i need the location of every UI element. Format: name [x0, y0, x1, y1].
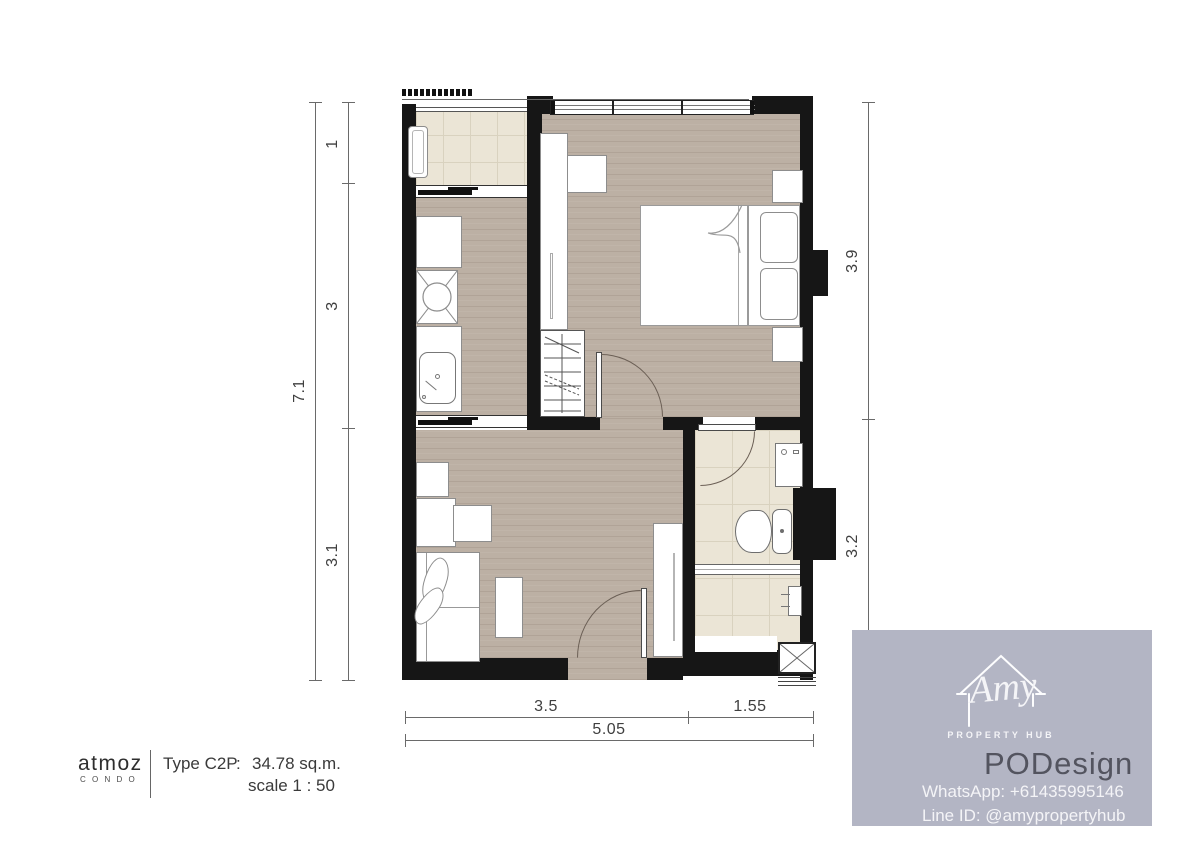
unit-type-label: Type C2P: [163, 754, 238, 774]
wardrobe-tall: [540, 133, 568, 330]
bathroom-vanity: [775, 443, 803, 487]
shelf-unit-hatched: [540, 330, 585, 417]
shower-mixer: [788, 586, 802, 616]
dining-seat-small: [416, 462, 449, 497]
entrance-threshold: [568, 656, 647, 680]
brand-logo: atmoz: [78, 752, 143, 776]
brand-sub: C O N D O: [80, 775, 137, 784]
nightstand-bottom: [772, 327, 803, 362]
toilet-tank: [772, 509, 792, 554]
wall-bottom-mid: [647, 658, 683, 680]
dim-line-left-outer: [315, 102, 316, 680]
dim-line-bottom-2: [405, 740, 814, 741]
bedroom-cabinet: [567, 155, 607, 193]
dim-label-right-seg1: 3.9: [844, 239, 862, 283]
nightstand-top: [772, 170, 803, 203]
watermark-whatsapp: WhatsApp: +61435995146: [922, 782, 1124, 802]
shaft-grille: [778, 676, 816, 686]
shower-screen: [695, 564, 800, 575]
dim-label-bottom-total: 5.05: [579, 721, 639, 739]
title-block: atmoz C O N D O Type C2P : 34.78 sq.m. s…: [70, 748, 350, 800]
bed-pillow-top: [760, 212, 798, 263]
dining-table: [416, 498, 456, 547]
wall-left: [402, 104, 416, 680]
title-divider: [150, 750, 151, 798]
balcony-floor: [416, 108, 527, 190]
dim-label-bottom-seg1: 3.5: [516, 698, 576, 716]
watermark-line-id: Line ID: @amypropertyhub: [922, 806, 1125, 826]
kitchen-sink: [419, 352, 456, 404]
entrance-door-leaf: [641, 588, 647, 658]
window-divider: [612, 101, 614, 114]
dim-label-left-seg1: 1: [324, 122, 342, 166]
dim-label-right-seg2: 3.2: [844, 524, 862, 568]
wall-bathroom-left: [683, 425, 695, 662]
dim-label-left-total: 7.1: [291, 369, 309, 413]
wall-divider-c: [755, 417, 800, 430]
watermark-subtitle: PROPERTY HUB: [936, 730, 1066, 740]
dining-seat-right: [453, 505, 492, 542]
agent-watermark: Amy PROPERTY HUB PODesign WhatsApp: +614…: [852, 630, 1152, 826]
bedroom-door-threshold: [600, 417, 663, 430]
balcony-sliding-door: [416, 185, 527, 198]
bedroom-window-band: [550, 100, 754, 115]
wardrobe-handle: [550, 253, 553, 319]
bed-blanket-fold: [698, 203, 750, 259]
dim-line-bottom-1: [405, 717, 814, 718]
toilet-bowl: [735, 510, 772, 553]
service-shaft: [778, 642, 816, 674]
unit-type-colon: :: [236, 754, 241, 774]
tv-console: [653, 523, 683, 657]
dim-label-bottom-seg2: 1.55: [720, 698, 780, 716]
shower-tray-edge: [695, 636, 777, 652]
balcony-railing-posts: [402, 89, 472, 96]
column-top-right: [800, 250, 828, 296]
window-divider: [681, 101, 683, 114]
floor-plan-sheet: 7.1 1 3 3.1 3.9 3.2 3.5 1.55 5.05 atmoz …: [0, 0, 1200, 848]
bed-pillow-bottom: [760, 268, 798, 320]
ac-unit: [408, 126, 428, 178]
dim-label-left-seg2: 3: [324, 284, 342, 328]
bathroom-door-leaf: [698, 424, 756, 431]
stove: [416, 270, 458, 324]
wall-kitchen-hall: [527, 197, 540, 430]
kitchen-counter-top: [416, 216, 462, 268]
unit-area: 34.78 sq.m.: [252, 754, 341, 774]
dim-label-left-seg3: 3.1: [324, 533, 342, 577]
unit-scale: scale 1 : 50: [248, 776, 335, 796]
column-mid-right: [793, 488, 836, 560]
watermark-studio: PODesign: [984, 746, 1133, 782]
coffee-table: [495, 577, 523, 638]
dim-line-left-inner: [348, 102, 349, 680]
balcony-edge-rail: [416, 107, 527, 112]
wall-divider-a: [527, 417, 600, 430]
kitchen-sliding-door: [416, 415, 527, 428]
dim-line-right: [868, 102, 869, 672]
